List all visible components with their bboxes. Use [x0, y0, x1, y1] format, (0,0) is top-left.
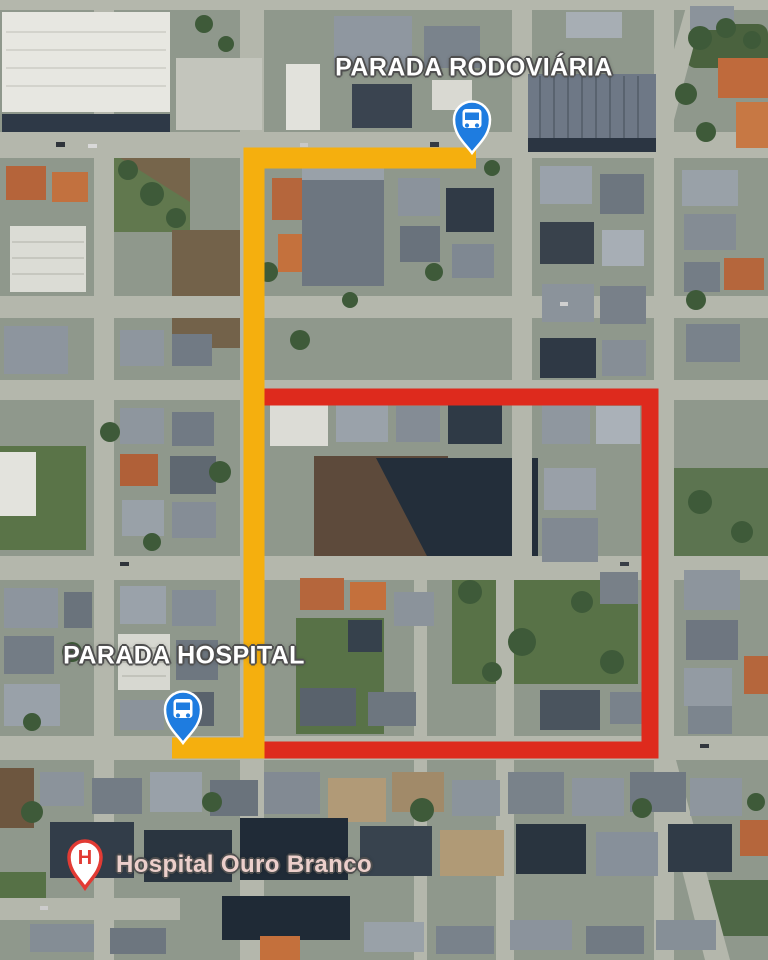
hospital-pin-glyph: H [78, 847, 92, 869]
label-parada-rodoviaria: PARADA RODOVIÁRIA [335, 54, 613, 83]
satellite-map[interactable]: H PARADA RODOVIÁRIA PARADA HOSPITAL Hosp… [0, 0, 768, 960]
label-parada-hospital: PARADA HOSPITAL [63, 642, 305, 671]
label-hospital-ouro-branco: Hospital Ouro Branco [116, 851, 372, 879]
map-canvas: H [0, 0, 768, 960]
